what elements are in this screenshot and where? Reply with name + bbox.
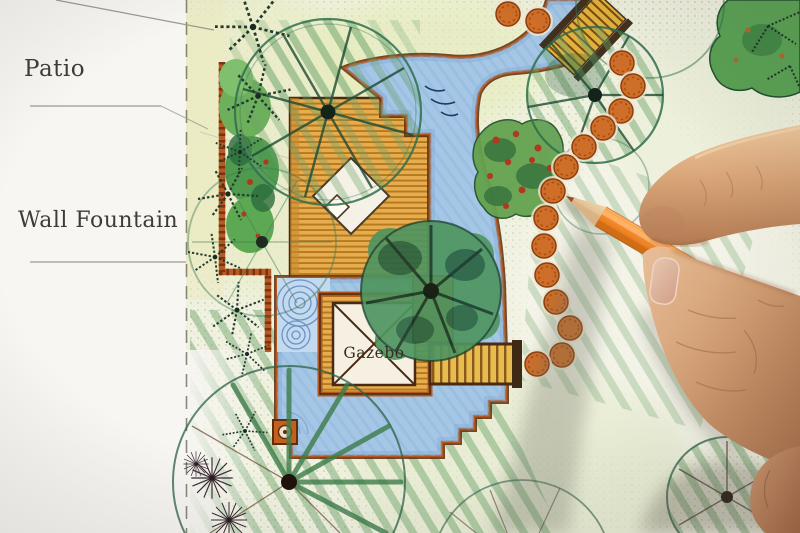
wall-fountain-label: Wall Fountain xyxy=(18,210,178,232)
photo-vignette xyxy=(0,0,800,533)
landscape-plan-photo: Gazebo xyxy=(0,0,800,533)
patio-label: Patio xyxy=(24,58,85,81)
photo-canvas: Gazebo Patio Wall Fountain xyxy=(0,0,800,533)
